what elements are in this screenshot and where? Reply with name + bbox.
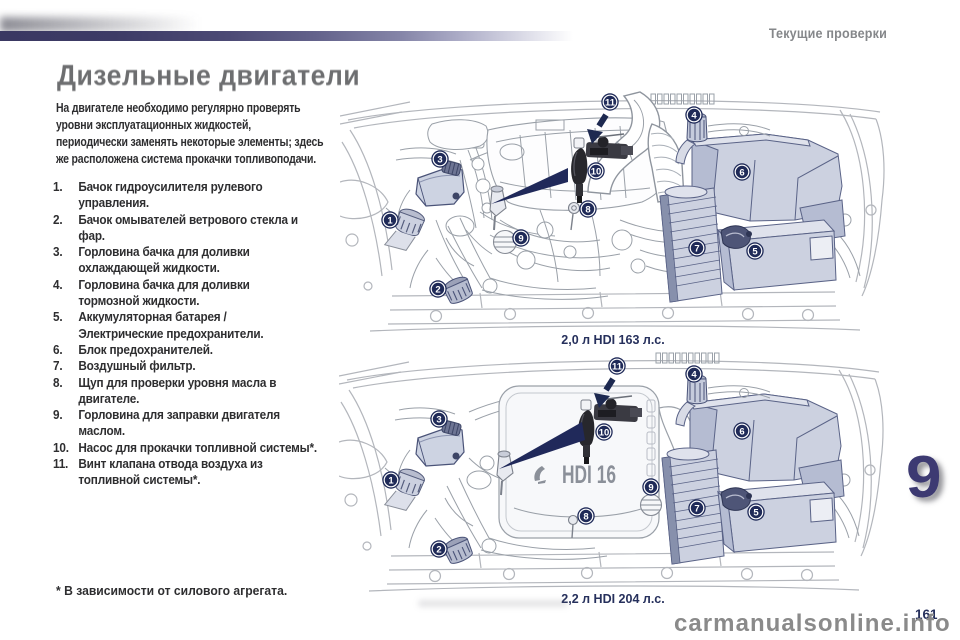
svg-text:8: 8 [583,512,588,523]
svg-text:8: 8 [585,205,590,216]
svg-text:3: 3 [436,415,441,426]
svg-text:4: 4 [691,370,697,381]
svg-text:3: 3 [437,155,442,166]
svg-text:11: 11 [612,362,623,373]
svg-text:HDI 16: HDI 16 [562,461,616,489]
svg-text:9: 9 [518,234,523,245]
svg-text:10: 10 [591,167,602,178]
svg-text:10: 10 [599,428,610,439]
svg-text:2: 2 [435,285,440,296]
svg-text:1: 1 [388,476,394,487]
svg-text:9: 9 [648,483,653,494]
svg-text:6: 6 [739,168,744,179]
svg-text:7: 7 [694,244,699,255]
svg-text:5: 5 [753,508,759,519]
svg-text:1: 1 [387,216,393,227]
svg-text:6: 6 [739,427,744,438]
svg-text:2: 2 [436,545,441,556]
svg-text:11: 11 [605,98,616,109]
svg-text:4: 4 [691,111,697,122]
svg-text:5: 5 [752,247,758,258]
svg-text:7: 7 [694,504,699,515]
